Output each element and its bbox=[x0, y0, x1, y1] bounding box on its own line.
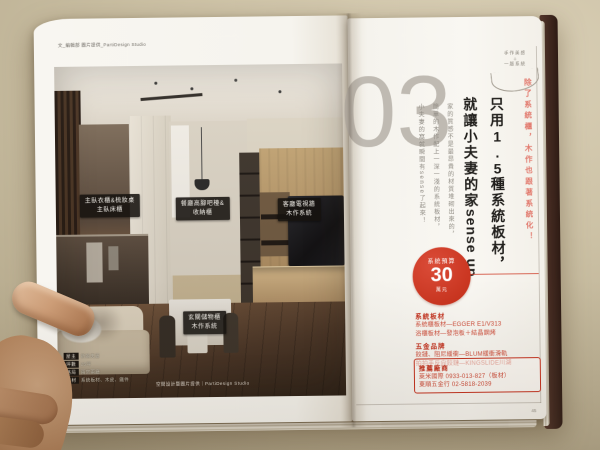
page-frame-line bbox=[356, 402, 541, 405]
photo-credit: 空間設計暨圖片提供｜PartiDesign Studio bbox=[156, 381, 250, 388]
headline-number: 1.5 bbox=[489, 128, 506, 176]
hand-holding-page bbox=[0, 240, 122, 450]
vendor-heading: 推薦廠商 bbox=[419, 361, 536, 372]
callout-line: 玄關儲物櫃 bbox=[188, 313, 221, 322]
headline-text: 只用 bbox=[489, 96, 505, 128]
headline-col-1: 只用1.5種系統板材， bbox=[483, 96, 512, 280]
dining-chair bbox=[159, 316, 176, 358]
headline-text: 就讓小夫妻的家 bbox=[462, 97, 479, 209]
callout-line: 收納櫃 bbox=[181, 208, 225, 218]
page-number: 45 bbox=[531, 408, 536, 413]
headline-text: 種系統板材， bbox=[490, 176, 507, 272]
hand-thumb bbox=[7, 277, 99, 341]
callout-line: 客廳電視牆 bbox=[283, 200, 316, 209]
budget-amount: 30 bbox=[413, 265, 471, 287]
headline-col-2: 就讓小夫妻的家sense up bbox=[457, 97, 486, 281]
spec-heading: 系統板材 bbox=[415, 309, 541, 321]
arc-note: 手作美感 ＋ 一脈系統 bbox=[488, 50, 542, 91]
credits-line: 文_編輯部 圖片提供_PartiDesign Studio bbox=[58, 42, 146, 49]
vendor-box: 推薦廠商 萊米國際 0933-013-827（板材） 東順五金行 02-5818… bbox=[414, 357, 541, 394]
budget-unit: 萬元 bbox=[413, 286, 471, 294]
photo-callout-entry-cabinet: 玄關儲物櫃 木作系統 bbox=[183, 311, 226, 335]
tv-console bbox=[253, 265, 345, 303]
headline: 只用1.5種系統板材， 就讓小夫妻的家sense up bbox=[457, 96, 512, 281]
side-note: 除了系統櫃，木作也跟著系統化！ bbox=[522, 78, 535, 256]
callout-line: 餐廳高腳吧檯& bbox=[181, 199, 225, 209]
ceiling-lights bbox=[154, 82, 157, 85]
spec-item: 浴櫃板材—發泡板＋結晶鋼烤 bbox=[415, 329, 541, 339]
photo-callout-tv-wall: 客廳電視牆 木作系統 bbox=[278, 198, 321, 222]
desk-scene: 文_編輯部 圖片提供_PartiDesign Studio bbox=[0, 0, 600, 450]
photo-callout-master-bedroom: 主臥衣櫃&梳妝桌 主臥床櫃 bbox=[80, 194, 140, 218]
budget-badge: 系統預算 30 萬元 bbox=[412, 247, 471, 306]
spec-heading: 五金品牌 bbox=[415, 339, 541, 351]
callout-line: 主臥床櫃 bbox=[85, 205, 135, 215]
vendor-item: 東順五金行 02-5818-2039 bbox=[419, 380, 536, 390]
intro-column: 小夫妻的窩就瞬間有sense了起來！ bbox=[413, 103, 429, 273]
callout-line: 木作系統 bbox=[188, 322, 221, 331]
callout-line: 木作系統 bbox=[283, 209, 316, 218]
photo-callout-dining-bar: 餐廳高腳吧檯& 收納櫃 bbox=[176, 197, 230, 221]
right-page: 手作美感 ＋ 一脈系統 03 家的質感不是最昂貴的材質堆砌出來的， 簡單的木作配… bbox=[348, 16, 547, 421]
callout-line: 主臥衣櫃&梳妝桌 bbox=[85, 196, 135, 206]
floating-shelf bbox=[261, 240, 288, 245]
